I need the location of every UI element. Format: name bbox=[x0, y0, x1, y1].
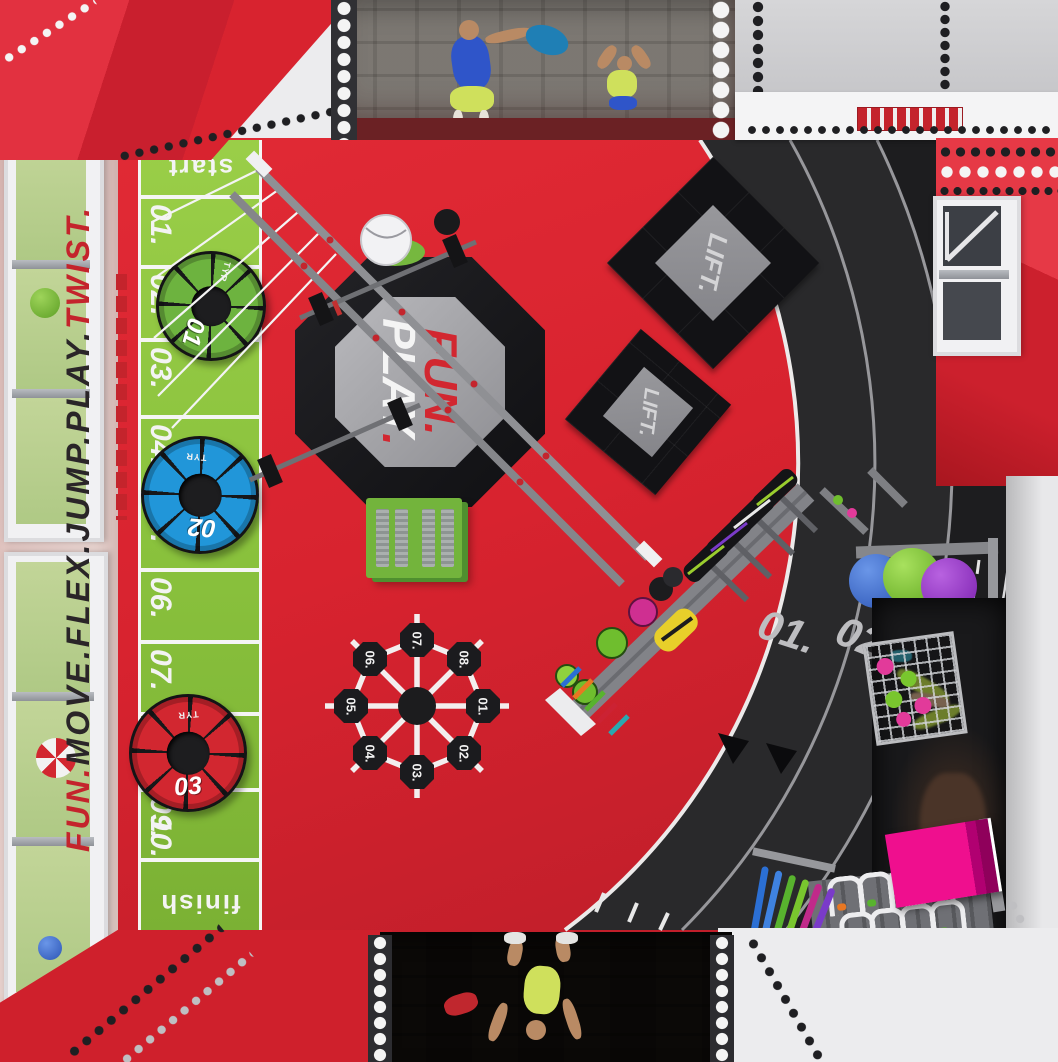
mural-man-head bbox=[459, 20, 479, 40]
right-window bbox=[933, 196, 1021, 356]
gym-room-render: 01. 02. start 01. 02. 03. 04. 05. 06. 07… bbox=[0, 0, 1058, 1062]
window-mullion bbox=[939, 270, 1009, 279]
mural2-sneaker bbox=[556, 932, 578, 944]
rope-grip bbox=[837, 903, 847, 911]
mural2-arm bbox=[560, 997, 584, 1041]
basket-ball-green bbox=[884, 690, 903, 709]
wheel-node: 04. bbox=[353, 736, 387, 770]
window-view-green-disc bbox=[30, 288, 60, 318]
wheel-node: 07. bbox=[400, 623, 434, 657]
slogan-fun: FUN. bbox=[60, 765, 96, 852]
basket-ball-pink bbox=[913, 696, 932, 715]
wheel-node: 02. bbox=[447, 736, 481, 770]
wheel-node: 05. bbox=[334, 689, 368, 723]
wheel-hub bbox=[398, 687, 436, 725]
ceiling-band bbox=[735, 0, 1058, 92]
basket-ball-pink bbox=[876, 657, 895, 676]
ceiling-dot-column bbox=[748, 0, 768, 92]
slogan-middle: MOVE.FLEX.JUMP.PLAY. bbox=[60, 329, 96, 765]
wheel-node: 03. bbox=[400, 755, 434, 789]
rope-grip bbox=[867, 899, 877, 907]
mural2-sneaker bbox=[504, 932, 526, 944]
basket-ball-green bbox=[900, 670, 918, 688]
ceiling-dot-column bbox=[936, 0, 954, 92]
mural-kid-shirt bbox=[607, 70, 637, 98]
mural2-dot-column-right bbox=[710, 935, 734, 1062]
wheel-node: 06. bbox=[353, 642, 387, 676]
window-brace bbox=[943, 206, 1001, 266]
left-wall-slogan: FUN.MOVE.FLEX.JUMP.PLAY.TWIST. bbox=[60, 52, 97, 852]
mural-dot-column-left bbox=[331, 0, 357, 140]
basket-ball-pink bbox=[895, 711, 912, 728]
wheel-node: 01. bbox=[466, 689, 500, 723]
ball-basket bbox=[862, 631, 967, 746]
mural2-red-shoe bbox=[442, 989, 481, 1019]
wheel-node: 08. bbox=[447, 642, 481, 676]
mural-floor-strip bbox=[335, 118, 737, 140]
mural2-dot-column-left bbox=[368, 935, 392, 1062]
mural-kid-head bbox=[617, 56, 632, 71]
bottom-wall-mural bbox=[380, 932, 732, 1062]
mural2-tank-top bbox=[522, 965, 562, 1016]
mural-kid-shorts bbox=[609, 96, 637, 110]
mural2-arm bbox=[486, 1001, 511, 1043]
bottom-wall-white bbox=[718, 928, 1058, 1062]
left-wall-brand-strip bbox=[116, 274, 127, 520]
top-wall-mural bbox=[335, 0, 737, 140]
mural-kid-arm bbox=[629, 43, 654, 71]
window-pane-dark bbox=[943, 282, 1001, 340]
window-view-blue-disc bbox=[38, 936, 62, 960]
slogan-twist: TWIST. bbox=[60, 205, 96, 329]
window-pane-dark bbox=[943, 206, 1001, 266]
ceiling-dot-row bbox=[745, 124, 1055, 136]
mural-throw-bag bbox=[522, 19, 573, 60]
mural-man-shorts bbox=[450, 86, 494, 112]
right-wall-dots-white bbox=[938, 162, 1058, 182]
right-wall-dots-dark bbox=[938, 144, 1058, 160]
mural-kid-arm bbox=[595, 43, 620, 71]
mural-dot-column-right bbox=[704, 0, 738, 140]
mural2-head bbox=[526, 1020, 546, 1040]
